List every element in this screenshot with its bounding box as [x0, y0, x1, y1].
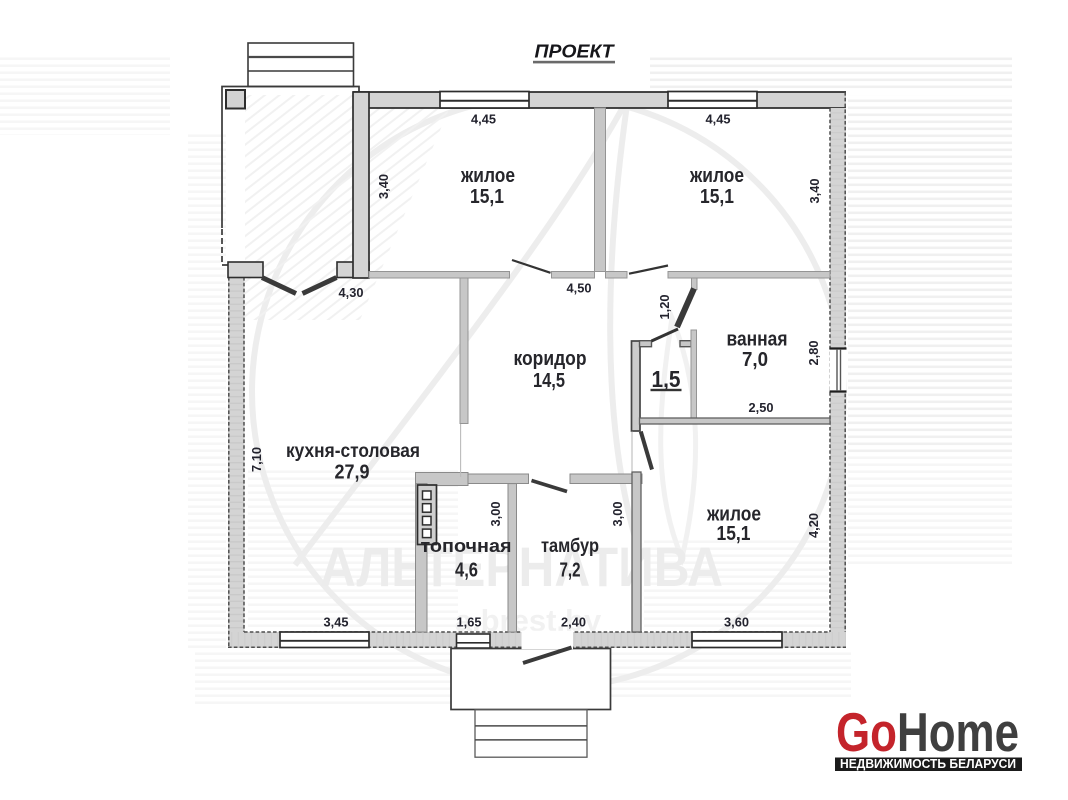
svg-text:4,50: 4,50 — [567, 281, 592, 296]
svg-text:жилое: жилое — [460, 165, 515, 187]
svg-text:4,6: 4,6 — [455, 559, 478, 582]
svg-text:коридор: коридор — [514, 348, 587, 370]
svg-text:АЛЬТЕРНАТИВА: АЛЬТЕРНАТИВА — [320, 535, 723, 598]
svg-text:4,45: 4,45 — [706, 112, 731, 127]
svg-text:тамбур: тамбур — [541, 536, 599, 557]
svg-text:кухня-столовая: кухня-столовая — [286, 440, 420, 462]
svg-text:3,45: 3,45 — [324, 614, 349, 629]
svg-text:4,30: 4,30 — [339, 285, 364, 300]
svg-text:1,5: 1,5 — [652, 366, 681, 392]
svg-text:7,10: 7,10 — [249, 447, 264, 472]
svg-text:3,60: 3,60 — [724, 614, 749, 629]
svg-text:топочная: топочная — [421, 535, 512, 556]
svg-text:2,80: 2,80 — [806, 341, 821, 366]
svg-text:15,1: 15,1 — [700, 185, 734, 208]
svg-text:3,40: 3,40 — [807, 179, 822, 204]
svg-text:15,1: 15,1 — [470, 185, 504, 208]
svg-text:3,00: 3,00 — [610, 502, 625, 527]
svg-text:27,9: 27,9 — [335, 461, 370, 484]
svg-text:3,00: 3,00 — [488, 502, 503, 527]
svg-text:4,45: 4,45 — [471, 112, 496, 127]
svg-text:GoHome: GoHome — [836, 701, 1019, 763]
svg-text:14,5: 14,5 — [533, 369, 565, 392]
svg-text:7,2: 7,2 — [560, 559, 581, 582]
svg-text:1,20: 1,20 — [657, 295, 672, 320]
svg-text:2,50: 2,50 — [749, 400, 774, 415]
svg-text:2,40: 2,40 — [561, 614, 586, 629]
svg-text:3,40: 3,40 — [376, 174, 391, 199]
svg-text:15,1: 15,1 — [717, 522, 751, 545]
svg-text:1,65: 1,65 — [457, 614, 482, 629]
svg-text:7,0: 7,0 — [742, 348, 768, 371]
svg-text:4,20: 4,20 — [806, 513, 821, 538]
svg-text:ПРОЕКТ: ПРОЕКТ — [535, 41, 616, 62]
svg-text:жилое: жилое — [689, 165, 744, 187]
svg-text:НЕДВИЖИМОСТЬ БЕЛАРУСИ: НЕДВИЖИМОСТЬ БЕЛАРУСИ — [840, 757, 1016, 771]
